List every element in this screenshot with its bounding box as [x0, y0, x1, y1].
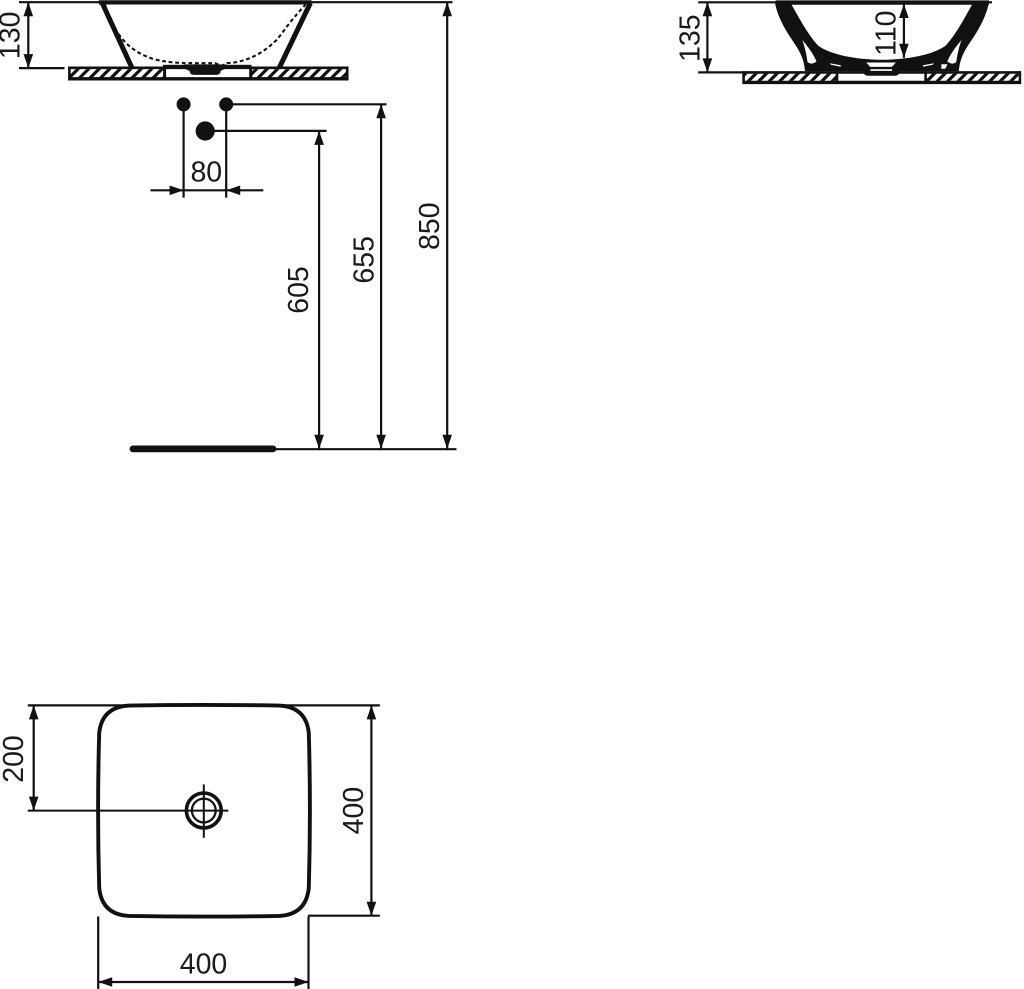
svg-text:80: 80 — [190, 157, 222, 189]
svg-text:135: 135 — [674, 14, 706, 62]
svg-text:400: 400 — [338, 787, 370, 835]
svg-text:400: 400 — [180, 949, 228, 981]
svg-text:850: 850 — [414, 202, 446, 250]
svg-text:130: 130 — [0, 12, 27, 60]
svg-text:110: 110 — [870, 10, 902, 55]
svg-text:605: 605 — [283, 266, 315, 314]
svg-text:200: 200 — [0, 735, 30, 783]
svg-text:655: 655 — [348, 236, 380, 284]
